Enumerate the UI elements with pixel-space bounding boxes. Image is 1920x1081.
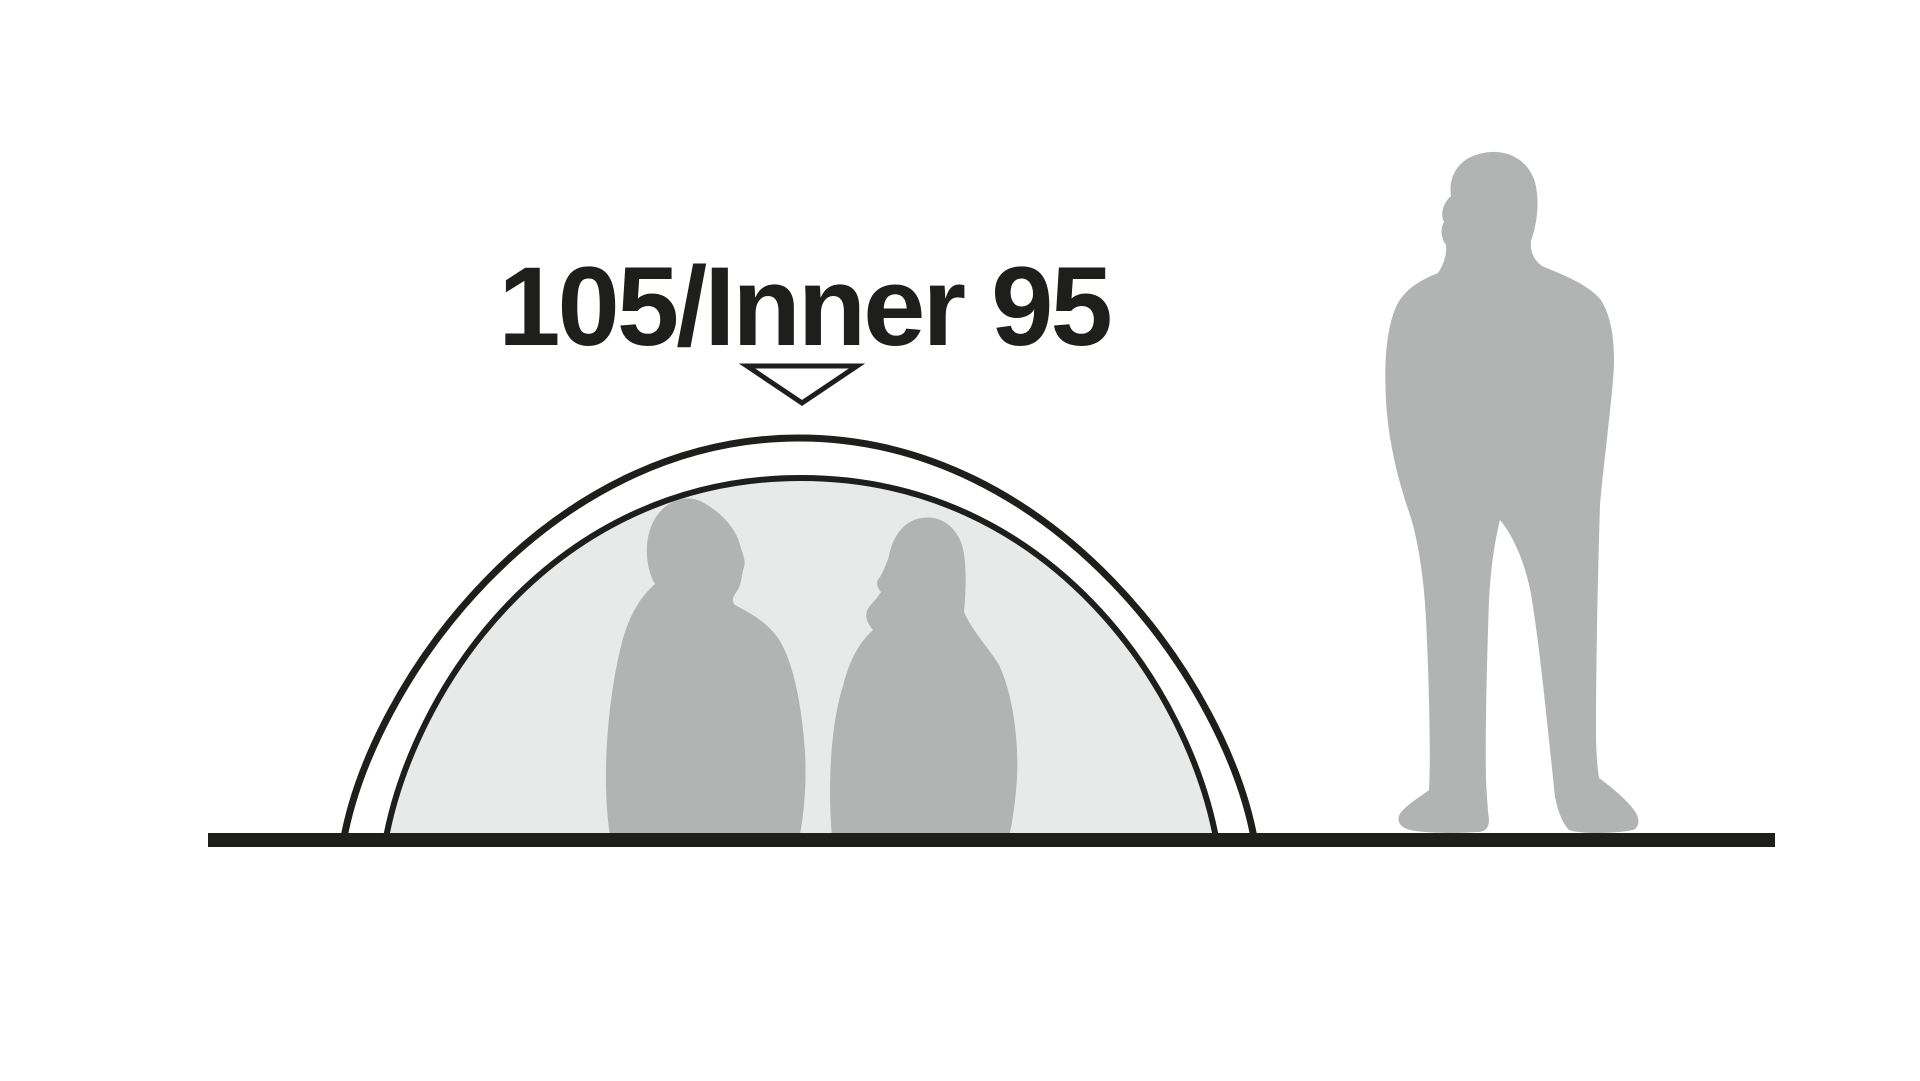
height-pointer-triangle-icon — [747, 366, 857, 403]
standing-person-silhouette — [1385, 152, 1638, 833]
tent-height-illustration: 105/Inner 95 — [0, 0, 1920, 1081]
tent-size-diagram: 105/Inner 95 — [0, 0, 1920, 1081]
ground-line — [208, 833, 1775, 847]
tent-height-label: 105/Inner 95 — [498, 244, 1110, 369]
